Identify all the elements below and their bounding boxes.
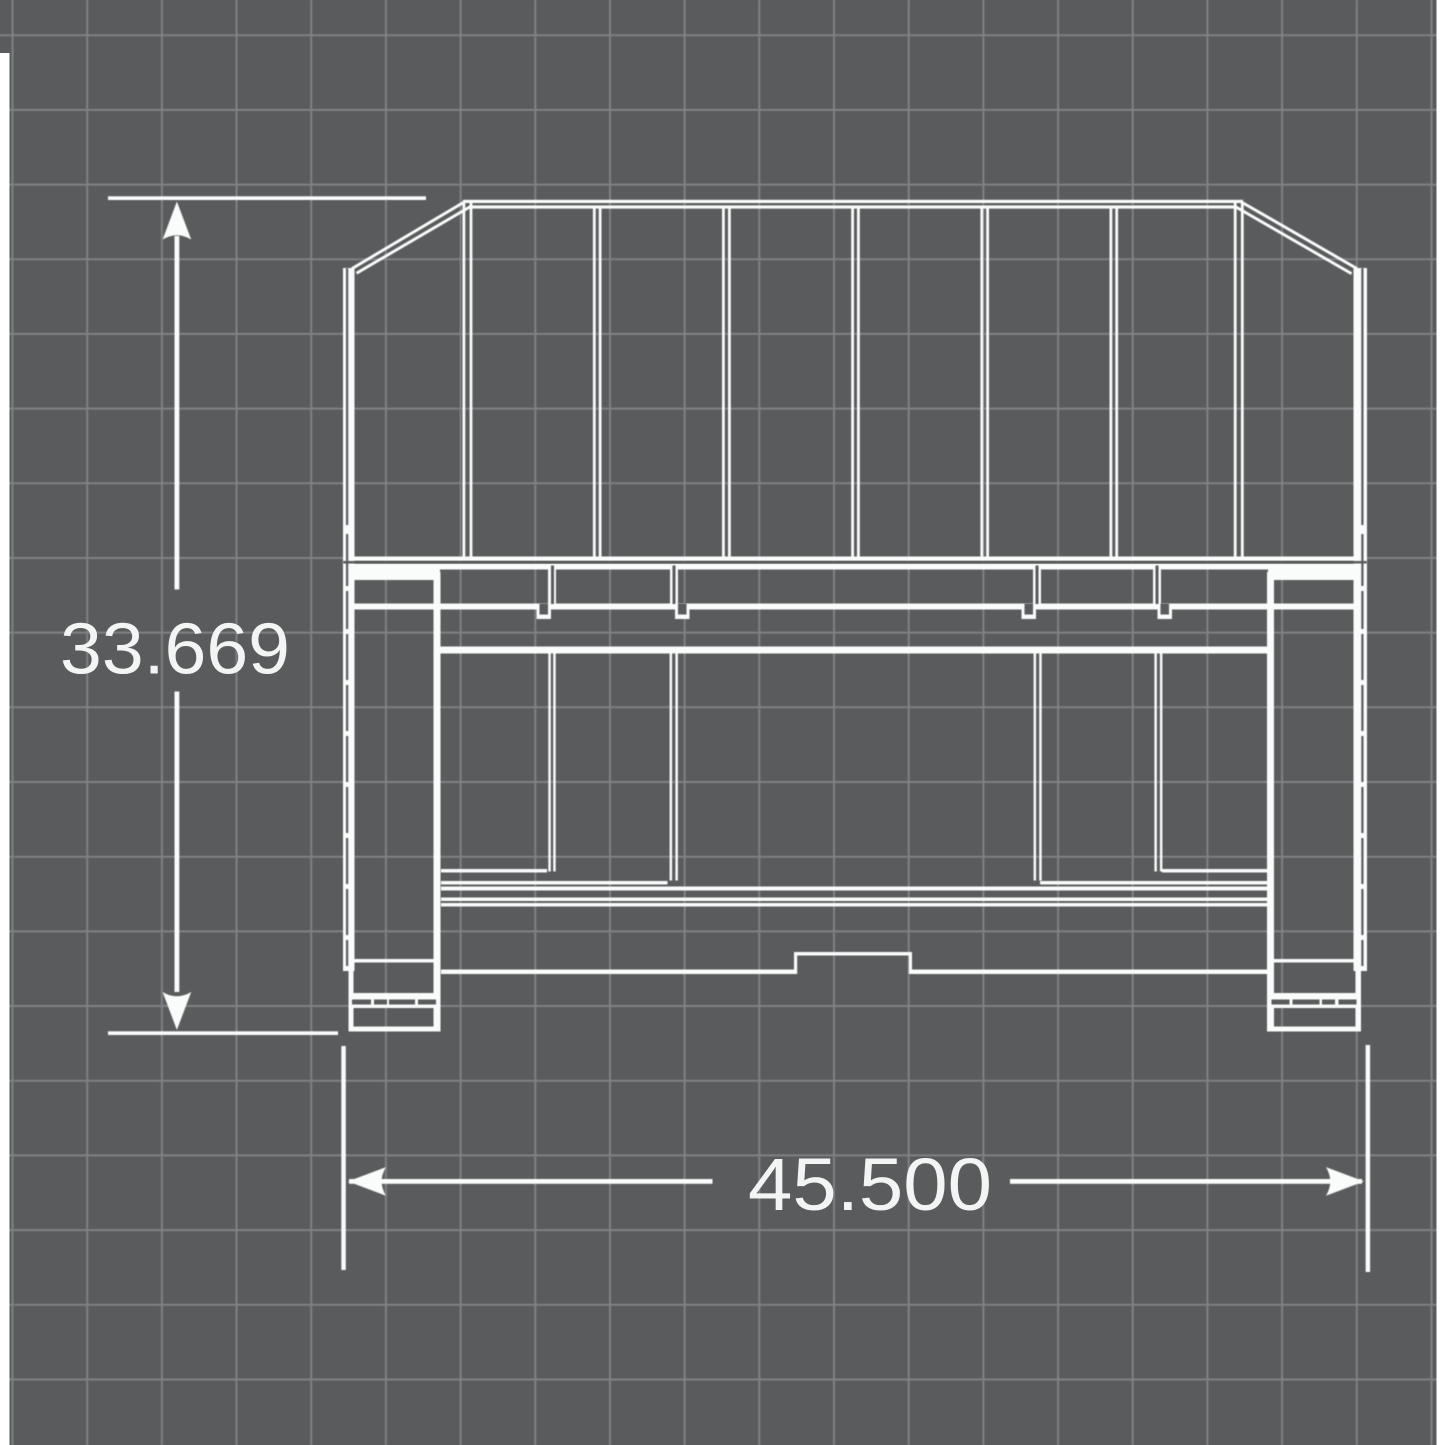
- svg-text:33.669: 33.669: [60, 609, 290, 689]
- svg-text:45.500: 45.500: [748, 1143, 992, 1226]
